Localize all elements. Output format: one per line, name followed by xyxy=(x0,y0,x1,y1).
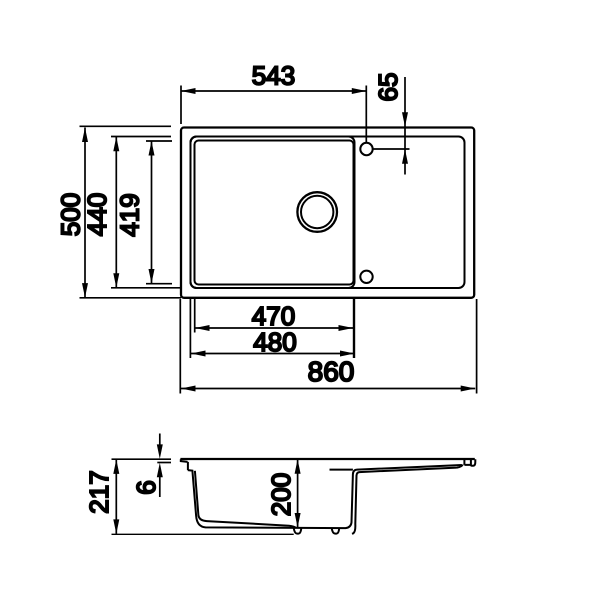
svg-text:419: 419 xyxy=(115,193,145,236)
svg-text:543: 543 xyxy=(252,61,295,91)
svg-text:65: 65 xyxy=(373,73,403,102)
svg-text:860: 860 xyxy=(308,356,355,387)
svg-text:440: 440 xyxy=(82,193,112,236)
svg-text:480: 480 xyxy=(253,327,296,357)
svg-text:6: 6 xyxy=(131,480,161,494)
svg-text:200: 200 xyxy=(266,473,296,516)
svg-text:217: 217 xyxy=(84,470,114,513)
svg-text:500: 500 xyxy=(56,193,86,236)
